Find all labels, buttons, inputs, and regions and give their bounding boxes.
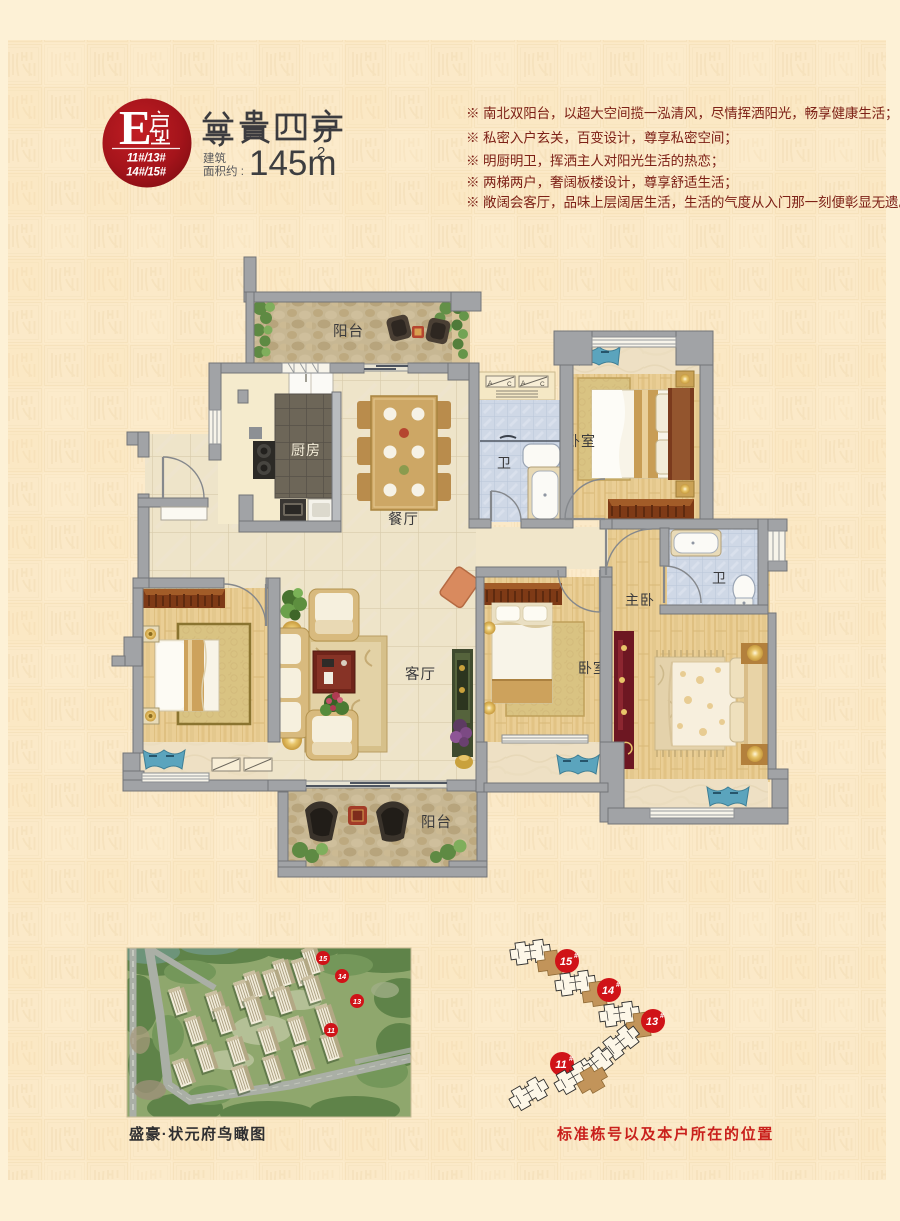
svg-text:2: 2 [317, 144, 325, 161]
svg-text:标准栋号以及本户所在的位置: 标准栋号以及本户所在的位置 [556, 1125, 774, 1143]
svg-text:13: 13 [646, 1016, 658, 1028]
svg-text:面积约 :: 面积约 : [203, 164, 244, 178]
svg-text:卫: 卫 [712, 570, 726, 586]
svg-text:15: 15 [319, 954, 328, 963]
svg-text:餐厅: 餐厅 [388, 511, 419, 528]
svg-text:※ 南北双阳台，以超大空间揽一泓清风，尽情挥洒阳光，畅享健康: ※ 南北双阳台，以超大空间揽一泓清风，尽情挥洒阳光，畅享健康生活； [466, 105, 898, 122]
svg-text:11: 11 [327, 1026, 335, 1035]
svg-text:※ 两梯两户，奢阔板楼设计，尊享舒适生活；: ※ 两梯两户，奢阔板楼设计，尊享舒适生活； [466, 174, 738, 191]
svg-text:#: # [569, 1056, 573, 1063]
svg-text:E: E [119, 100, 152, 155]
svg-text:A: A [521, 380, 526, 387]
svg-text:14: 14 [602, 985, 614, 997]
svg-text:14#/15#: 14#/15# [126, 167, 166, 179]
svg-text:阳台: 阳台 [421, 814, 452, 831]
svg-text:13: 13 [353, 997, 362, 1006]
svg-text:#: # [574, 953, 578, 960]
svg-text:11: 11 [555, 1059, 566, 1071]
svg-text:卫: 卫 [497, 455, 511, 471]
svg-text:厨房: 厨房 [291, 442, 321, 458]
svg-text:14: 14 [338, 972, 347, 981]
svg-text:阳台: 阳台 [333, 323, 364, 340]
svg-text:※ 明厨明卫，挥洒主人对阳光生活的热恋；: ※ 明厨明卫，挥洒主人对阳光生活的热恋； [466, 153, 724, 170]
svg-text:C: C [507, 381, 512, 388]
svg-text:客厅: 客厅 [405, 666, 436, 683]
svg-text:※ 私密入户玄关，百变设计，尊享私密空间；: ※ 私密入户玄关，百变设计，尊享私密空间； [466, 130, 738, 147]
svg-text:#: # [660, 1013, 664, 1020]
svg-text:15: 15 [560, 956, 573, 968]
svg-text:建筑: 建筑 [203, 151, 226, 165]
svg-text:※ 敞阔会客厅，品味上层阔居生活，生活的气度从入门那一刻便彰: ※ 敞阔会客厅，品味上层阔居生活，生活的气度从入门那一刻便彰显无遗。 [466, 194, 900, 210]
svg-text:A: A [488, 380, 493, 387]
svg-text:盛豪·状元府鸟瞰图: 盛豪·状元府鸟瞰图 [129, 1125, 267, 1143]
svg-text:C: C [540, 381, 545, 388]
svg-text:#: # [616, 982, 620, 989]
svg-text:主卧: 主卧 [625, 592, 655, 608]
svg-text:11#/13#: 11#/13# [127, 153, 167, 165]
